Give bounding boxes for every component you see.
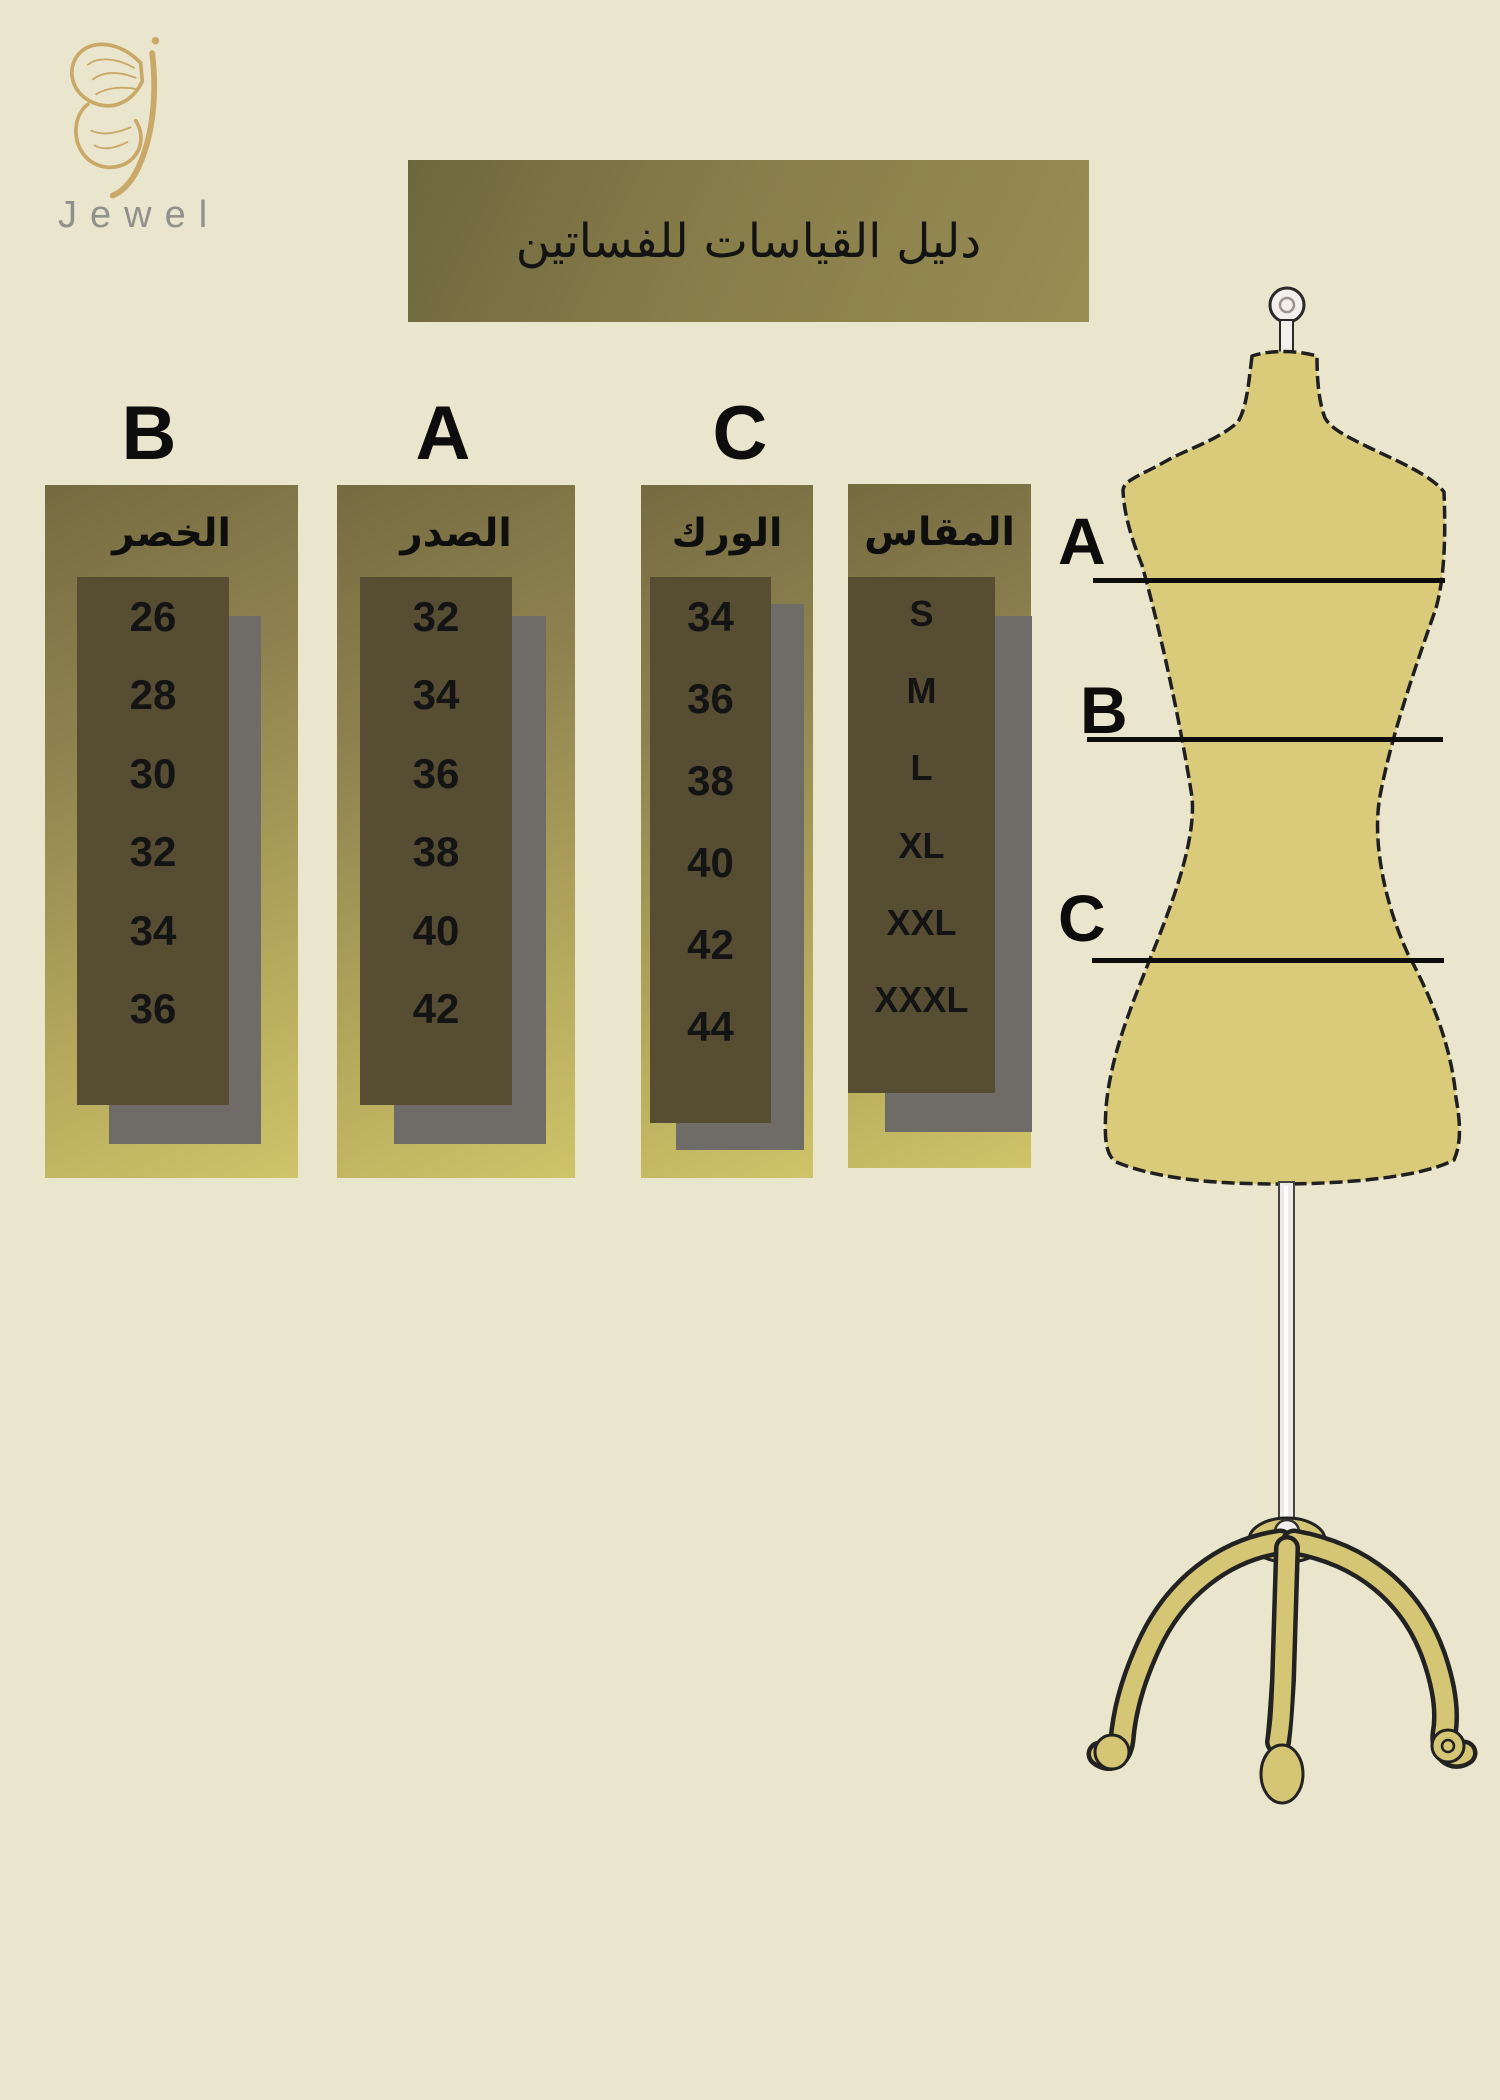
value-cell: 26 xyxy=(77,593,229,641)
value-cell: 42 xyxy=(360,985,512,1033)
brand-name: Jewel xyxy=(58,194,278,237)
value-cell: 30 xyxy=(77,750,229,798)
column-letter-bust: A xyxy=(388,390,498,477)
column-values-waist: 26 28 30 32 34 36 xyxy=(77,577,229,1105)
value-cell: 40 xyxy=(360,907,512,955)
value-cell: M xyxy=(848,670,995,712)
value-cell: XL xyxy=(848,825,995,867)
value-cell: 44 xyxy=(650,1003,771,1051)
column-header-bust: الصدر xyxy=(337,497,575,569)
column-header-hip: الورك xyxy=(641,497,813,569)
column-values-size: S M L XL XXL XXXL xyxy=(848,577,995,1093)
value-cell: 36 xyxy=(650,675,771,723)
size-column-size: المقاس S M L XL XXL XXXL xyxy=(848,484,1031,1168)
title-banner: دليل القياسات للفساتين xyxy=(408,160,1089,322)
value-cell: 34 xyxy=(360,671,512,719)
value-cell: XXL xyxy=(848,902,995,944)
column-letter-hip: C xyxy=(685,390,795,477)
value-cell: 32 xyxy=(360,593,512,641)
measure-label-a: A xyxy=(1058,503,1106,579)
value-cell: 34 xyxy=(77,907,229,955)
value-cell: 28 xyxy=(77,671,229,719)
page-title: دليل القياسات للفساتين xyxy=(516,214,981,269)
measure-line-a xyxy=(1093,578,1445,583)
column-values-bust: 32 34 36 38 40 42 xyxy=(360,577,512,1105)
value-cell: 32 xyxy=(77,828,229,876)
size-column-hip: الورك 34 36 38 40 42 44 xyxy=(641,485,813,1178)
column-header-size: المقاس xyxy=(848,496,1031,568)
value-cell: L xyxy=(848,747,995,789)
mannequin-illustration xyxy=(1040,240,1500,1900)
value-cell: 42 xyxy=(650,921,771,969)
value-cell: 36 xyxy=(77,985,229,1033)
value-cell: 34 xyxy=(650,593,771,641)
value-cell: XXXL xyxy=(848,979,995,1021)
column-values-hip: 34 36 38 40 42 44 xyxy=(650,577,771,1123)
size-column-waist: الخصر 26 28 30 32 34 36 xyxy=(45,485,298,1178)
dress-size-guide-poster: Jewel دليل القياسات للفساتين B A C الخصر… xyxy=(0,0,1500,2100)
brand-logo-butterfly-icon xyxy=(55,28,195,210)
measure-line-c xyxy=(1092,958,1444,963)
size-column-bust: الصدر 32 34 36 38 40 42 xyxy=(337,485,575,1178)
value-cell: S xyxy=(848,593,995,635)
measure-label-c: C xyxy=(1058,880,1106,956)
value-cell: 38 xyxy=(360,828,512,876)
measure-line-b xyxy=(1087,737,1443,742)
value-cell: 38 xyxy=(650,757,771,805)
column-header-waist: الخصر xyxy=(45,497,298,569)
column-letter-waist: B xyxy=(94,390,204,477)
value-cell: 40 xyxy=(650,839,771,887)
value-cell: 36 xyxy=(360,750,512,798)
